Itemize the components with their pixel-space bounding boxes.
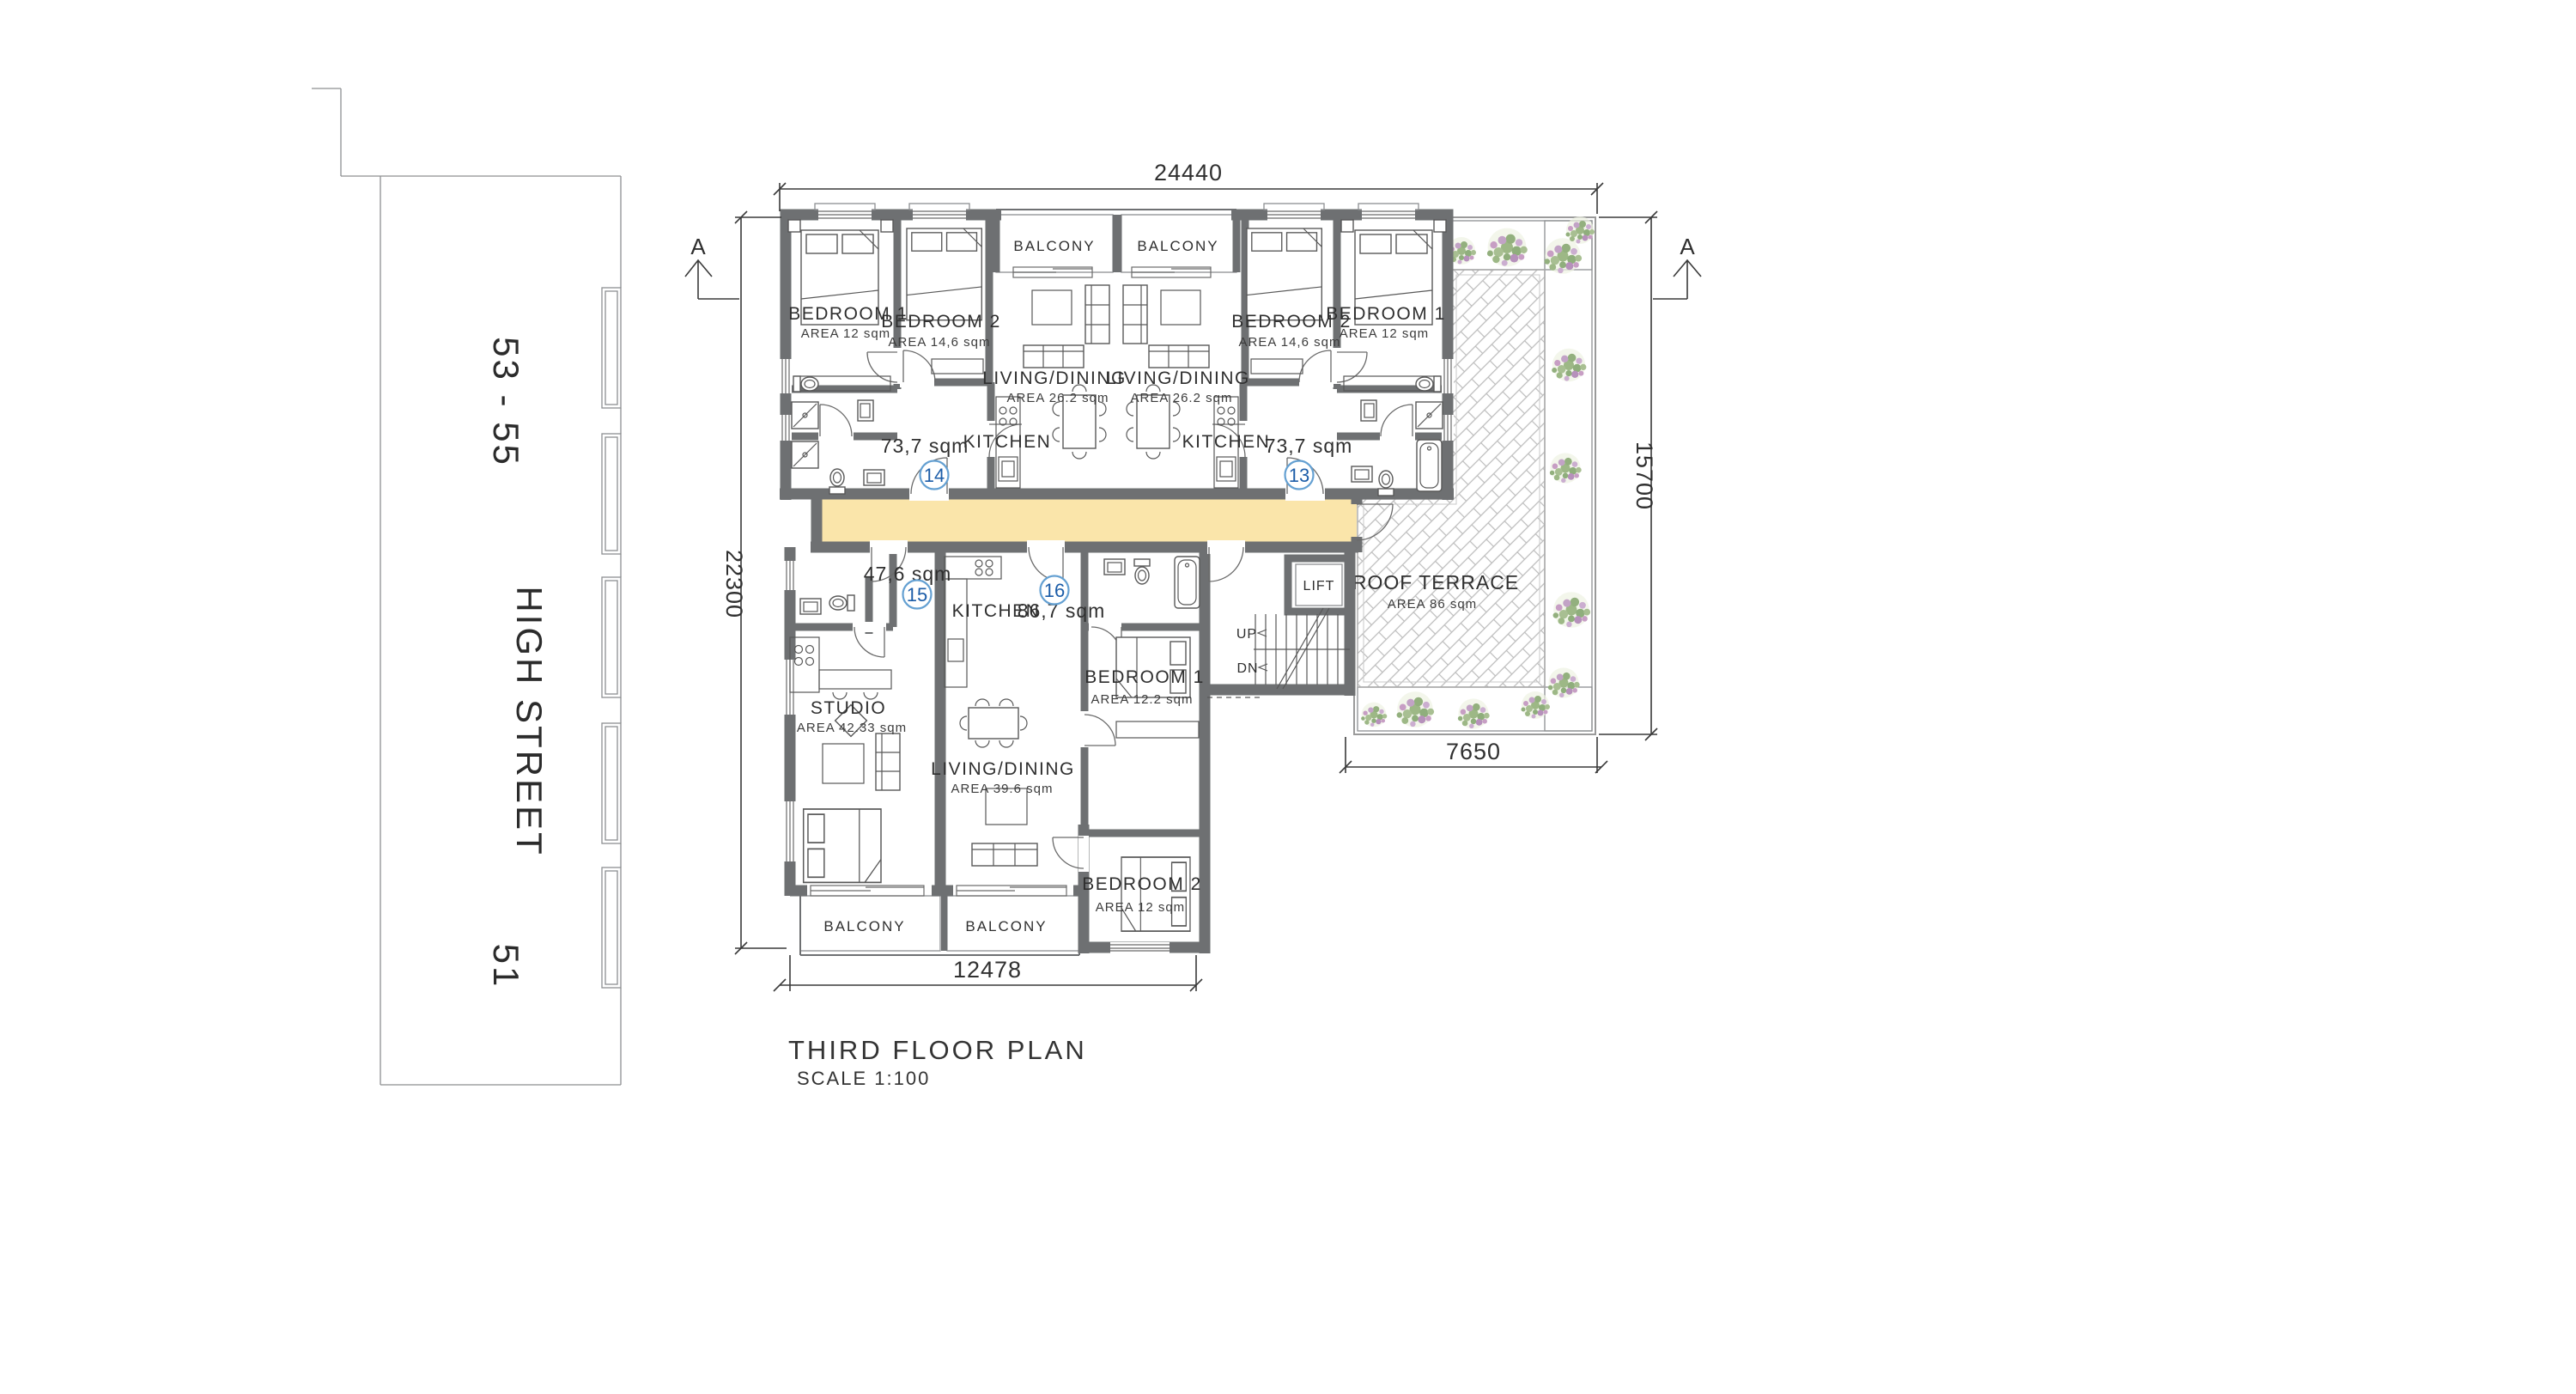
- room-area-bedroom1-u13: AREA 12 sqm: [1340, 326, 1429, 341]
- room-label-bedroom1-u13: BEDROOM 1: [1326, 304, 1446, 324]
- dim-value-top: 24440: [1154, 160, 1223, 186]
- dimension-bottom: 12478: [774, 955, 1202, 991]
- dim-value-bottom: 12478: [953, 957, 1022, 983]
- dimension-top: 24440: [774, 160, 1603, 214]
- svg-text:A: A: [1680, 234, 1695, 259]
- unit-badge-14: 14: [920, 461, 949, 490]
- room-area-bedroom2-u14: AREA 14,6 sqm: [889, 335, 991, 350]
- bed: [804, 809, 881, 882]
- room-label-living-u16: LIVING/DINING: [931, 759, 1075, 779]
- stairs-up-label: UP: [1236, 627, 1257, 642]
- room-area-bedroom2-u16: AREA 12 sqm: [1096, 900, 1185, 915]
- room-area-studio: AREA 42.33 sqm: [797, 721, 907, 735]
- kitchen-counter: [790, 637, 891, 699]
- svg-text:A: A: [690, 234, 706, 259]
- balcony-label-u14: BALCONY: [1013, 238, 1095, 254]
- dimension-right: 15700: [1599, 211, 1657, 740]
- balcony-label-u16: BALCONY: [965, 918, 1047, 934]
- street-numbers-53-55: 53 - 55: [486, 337, 526, 467]
- wardrobe: [1251, 359, 1303, 374]
- unit-badge-13: 13: [1285, 461, 1314, 490]
- room-label-lift: LIFT: [1303, 579, 1335, 594]
- room-label-living-u13: LIVING/DINING: [1106, 368, 1250, 388]
- wardrobe: [932, 359, 983, 374]
- room-label-roof-terrace: ROOF TERRACE: [1352, 571, 1519, 594]
- balcony-label-u15: BALCONY: [823, 918, 905, 934]
- stair-core: LIFT UP DN: [1207, 564, 1350, 697]
- room-label-kitchen-u14: KITCHEN: [963, 432, 1052, 452]
- room-area-bedroom1-u14: AREA 12 sqm: [801, 326, 890, 341]
- title-block: THIRD FLOOR PLAN SCALE 1:100: [788, 1035, 1087, 1089]
- room-area-bedroom1-u16: AREA 12.2 sqm: [1091, 692, 1194, 707]
- room-label-studio: STUDIO: [811, 698, 886, 718]
- floor-plan-drawing: 53 - 55 HIGH STREET 51 ROOF TERRACE: [0, 0, 2576, 1394]
- kitchen-counter: [945, 557, 1001, 687]
- dim-value-terrace: 7650: [1446, 739, 1501, 764]
- room-label-kitchen-u13: KITCHEN: [1182, 432, 1271, 452]
- dimension-left: 22300: [721, 211, 787, 954]
- unit-badge-16: 16: [1041, 576, 1069, 605]
- room-label-living-u14: LIVING/DINING: [982, 368, 1127, 388]
- balcony-label-u13: BALCONY: [1137, 238, 1218, 254]
- room-label-bedroom2-u14: BEDROOM 2: [881, 312, 1001, 332]
- section-marker-left: A: [685, 234, 739, 299]
- bed: [907, 228, 981, 320]
- room-area-living-u14: AREA 26.2 sqm: [1007, 391, 1109, 405]
- unit-area-u15: 47,6 sqm: [864, 563, 952, 585]
- stairs-dn-label: DN: [1236, 661, 1258, 676]
- floor-plan-sheet: 53 - 55 HIGH STREET 51 ROOF TERRACE: [0, 0, 2576, 1394]
- room-label-bedroom2-u16: BEDROOM 2: [1082, 874, 1202, 894]
- room-area-living-u13: AREA 26.2 sqm: [1131, 391, 1233, 405]
- svg-text:16: 16: [1044, 580, 1065, 601]
- section-marker-right: A: [1653, 234, 1701, 299]
- bed: [1121, 857, 1190, 931]
- corridor: [817, 494, 1357, 547]
- unit-area-u14: 73,7 sqm: [881, 435, 969, 457]
- bed: [1247, 228, 1321, 320]
- svg-text:15: 15: [907, 584, 927, 606]
- dimension-terrace-bottom: 7650: [1340, 737, 1607, 773]
- street-labels: 53 - 55 HIGH STREET 51: [486, 337, 550, 989]
- wardrobe: [1116, 721, 1199, 738]
- dim-value-left: 22300: [721, 550, 747, 618]
- unit-badge-15: 15: [903, 581, 932, 609]
- neighbor-building-outline: [312, 88, 621, 1085]
- dim-value-right: 15700: [1631, 441, 1657, 510]
- street-number-51: 51: [486, 944, 526, 989]
- svg-text:13: 13: [1289, 465, 1309, 486]
- svg-text:14: 14: [924, 465, 945, 486]
- unit-area-u13: 73,7 sqm: [1265, 435, 1353, 457]
- room-area-bedroom2-u13: AREA 14,6 sqm: [1239, 335, 1341, 350]
- drawing-scale: SCALE 1:100: [797, 1068, 930, 1089]
- drawing-title: THIRD FLOOR PLAN: [788, 1035, 1087, 1065]
- room-area-roof-terrace: AREA 86 sqm: [1388, 597, 1477, 612]
- room-label-bedroom1-u16: BEDROOM 1: [1084, 667, 1205, 687]
- room-area-living-u16: AREA 39.6 sqm: [951, 782, 1054, 796]
- street-name: HIGH STREET: [509, 586, 550, 856]
